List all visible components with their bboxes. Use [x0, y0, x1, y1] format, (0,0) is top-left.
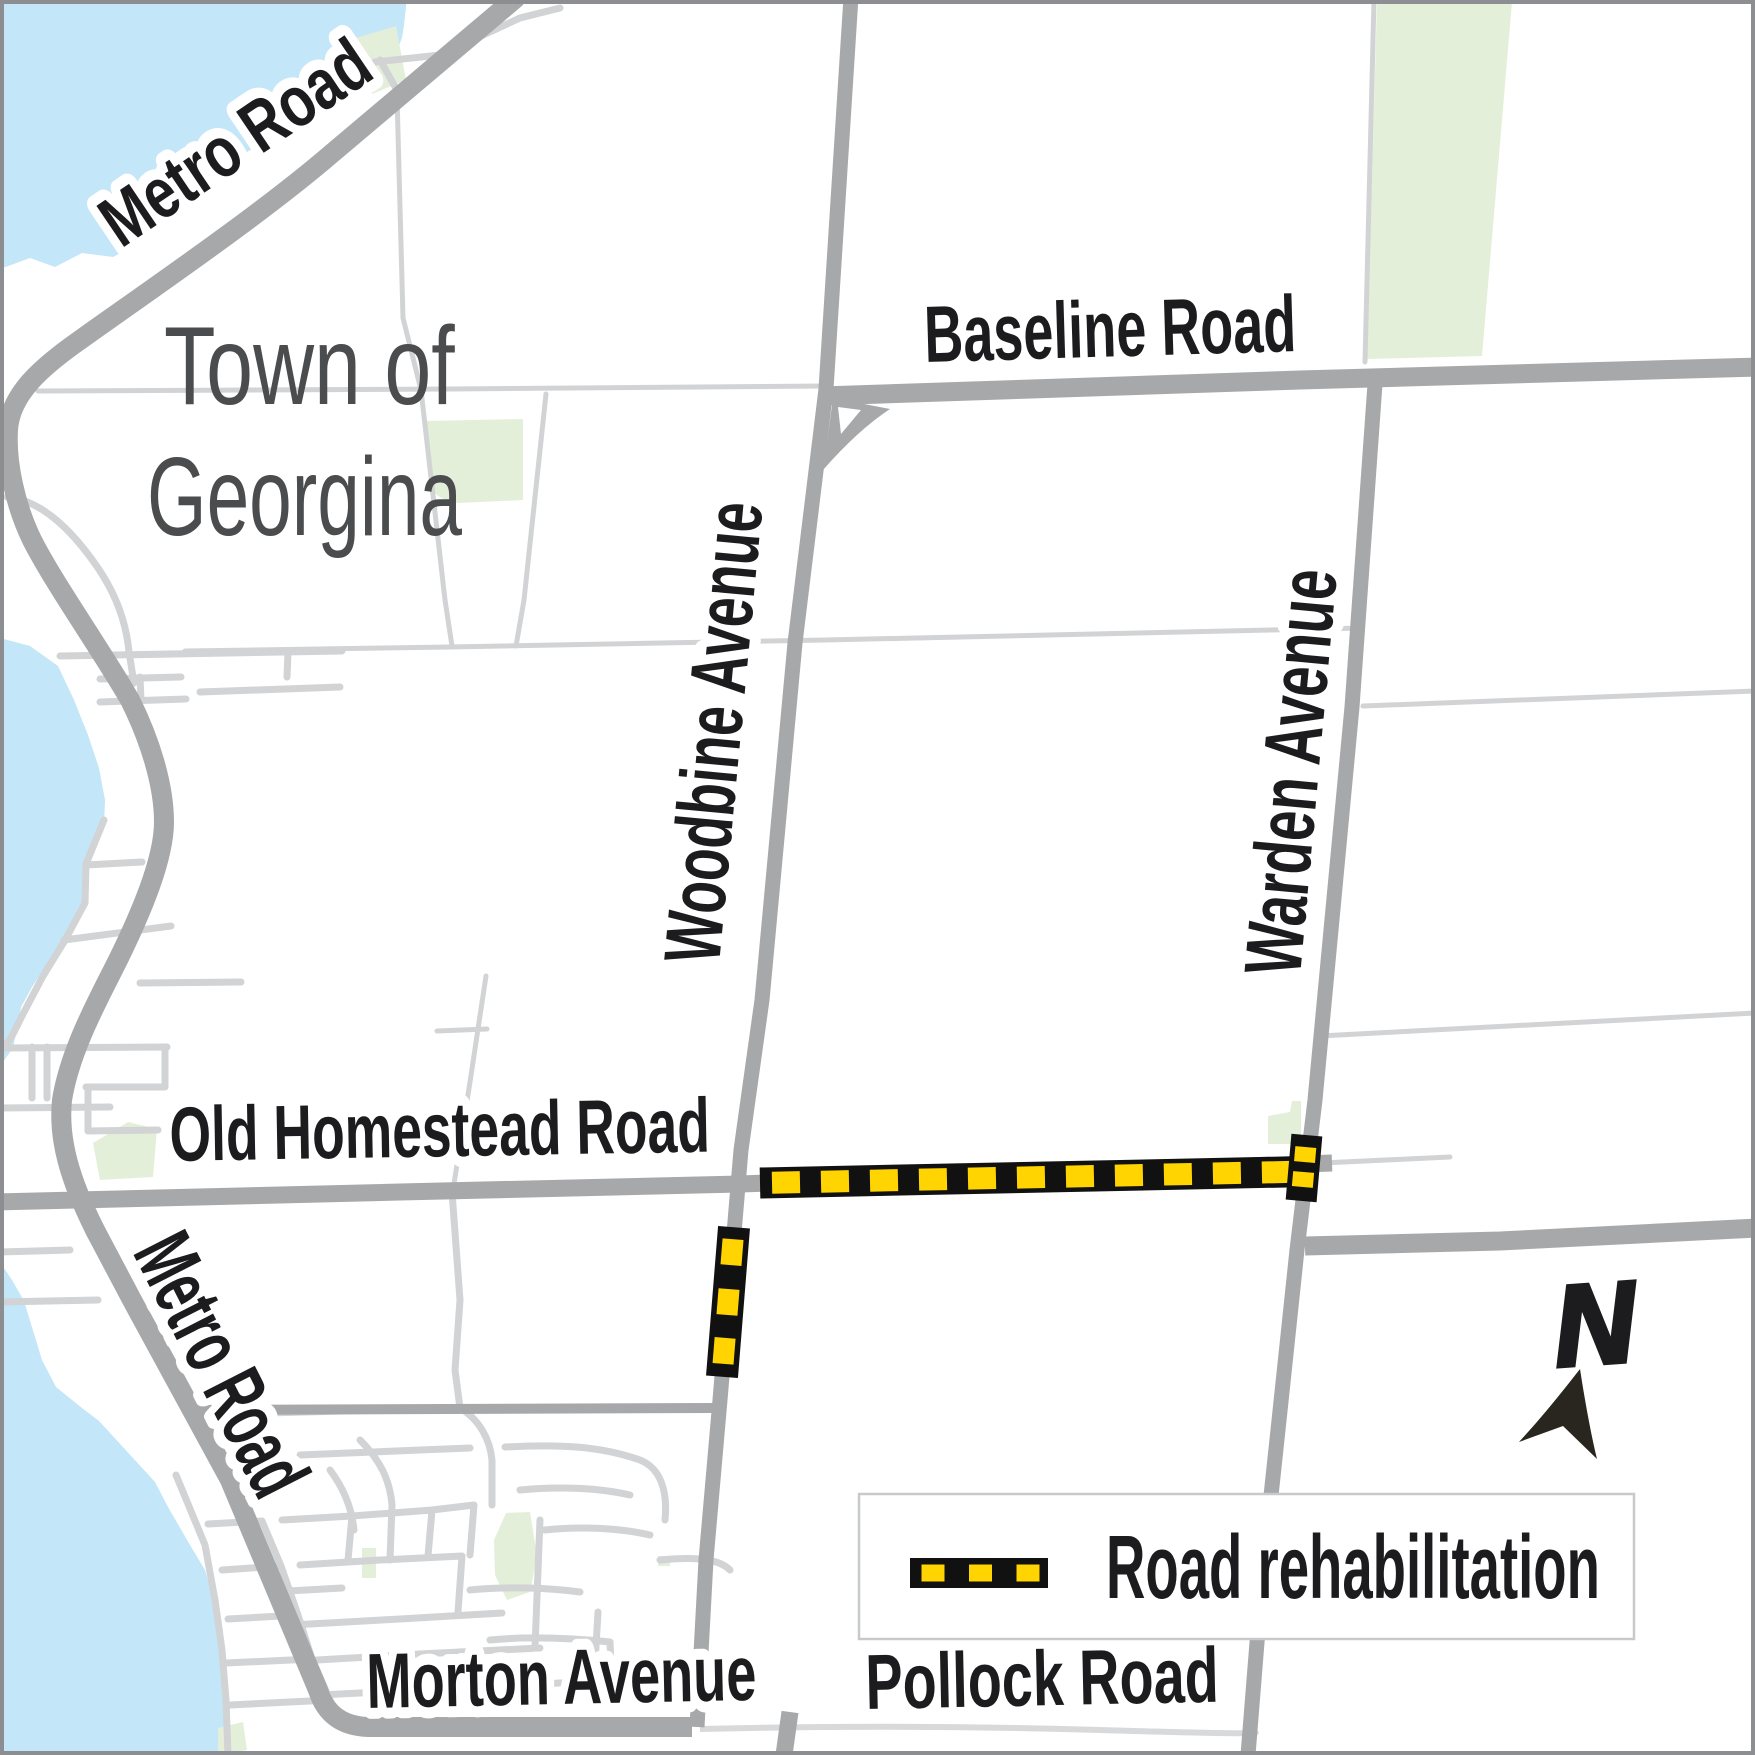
svg-text:Road rehabilitation: Road rehabilitation — [1106, 1517, 1600, 1617]
svg-text:Town of: Town of — [164, 304, 455, 428]
svg-text:Old Homestead Road: Old Homestead Road — [169, 1083, 711, 1178]
svg-text:Morton Avenue: Morton Avenue — [366, 1630, 758, 1725]
svg-text:Georgina: Georgina — [147, 436, 463, 559]
svg-text:N: N — [1550, 1257, 1642, 1390]
svg-text:Pollock Road: Pollock Road — [865, 1633, 1220, 1727]
svg-text:Baseline Road: Baseline Road — [923, 279, 1298, 379]
